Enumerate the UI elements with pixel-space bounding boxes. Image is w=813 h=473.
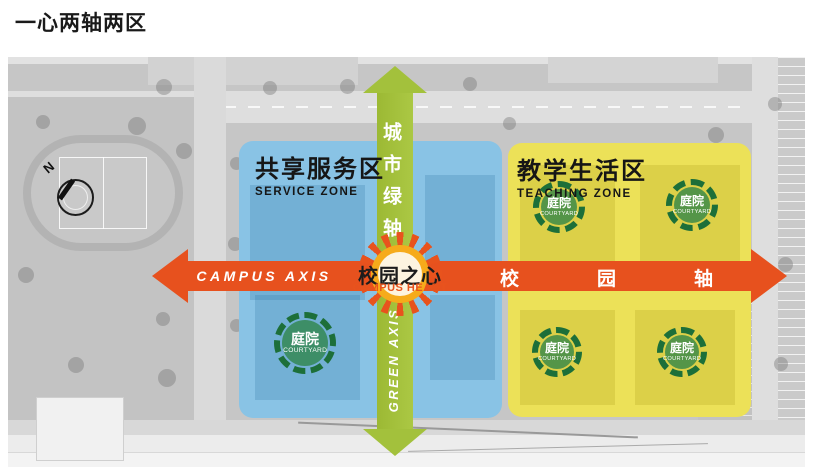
service-zone-label: 共享服务区 SERVICE ZONE xyxy=(255,149,385,198)
teaching-zone-label: 教学生活区 TEACHING ZONE xyxy=(517,151,647,200)
courtyard-label-zh: 庭院 xyxy=(545,342,569,355)
courtyard-label-zh: 庭院 xyxy=(680,195,704,208)
courtyard-label-en: COURTYARD xyxy=(663,356,701,362)
courtyard-badge: 庭院 COURTYARD xyxy=(657,327,707,377)
background-building xyxy=(548,57,718,83)
courtyard-label-en: COURTYARD xyxy=(283,347,327,354)
courtyard-label-en: COURTYARD xyxy=(540,211,578,217)
green-axis-arrowhead-down-icon xyxy=(363,429,427,456)
courtyard-label-zh: 庭院 xyxy=(670,342,694,355)
campus-heart-label-en: CAMPUS HEART xyxy=(340,282,460,294)
green-axis-label-en: GREEN AXIS xyxy=(386,300,404,420)
campus-axis-label-zh: 校园轴 xyxy=(500,264,800,291)
slide-title: 一心两轴两区 xyxy=(15,7,147,37)
campus-axis-label-en: CAMPUS AXIS xyxy=(164,268,364,284)
road-vertical xyxy=(194,57,226,421)
service-zone-title-zh: 共享服务区 xyxy=(255,149,385,184)
running-track xyxy=(23,135,183,251)
courtyard-badge: 庭院 COURTYARD xyxy=(666,179,718,231)
field-midline xyxy=(103,157,104,229)
north-compass: N xyxy=(57,179,94,216)
background-building xyxy=(148,57,358,85)
green-axis-arrowhead-up-icon xyxy=(363,66,427,93)
zone-building xyxy=(430,295,495,380)
background-building xyxy=(36,397,124,461)
courtyard-label-en: COURTYARD xyxy=(673,209,711,215)
teaching-zone-title-zh: 教学生活区 xyxy=(517,151,647,186)
site-plan-map: N 共享服务区 SERVICE ZONE 教学生活区 TEACHING ZONE… xyxy=(8,57,805,467)
courtyard-label-en: COURTYARD xyxy=(538,356,576,362)
courtyard-badge: 庭院 COURTYARD xyxy=(274,312,336,374)
service-zone-title-en: SERVICE ZONE xyxy=(255,186,385,198)
courtyard-label-zh: 庭院 xyxy=(291,332,319,347)
teaching-zone-title-en: TEACHING ZONE xyxy=(517,188,647,200)
courtyard-badge: 庭院 COURTYARD xyxy=(532,327,582,377)
